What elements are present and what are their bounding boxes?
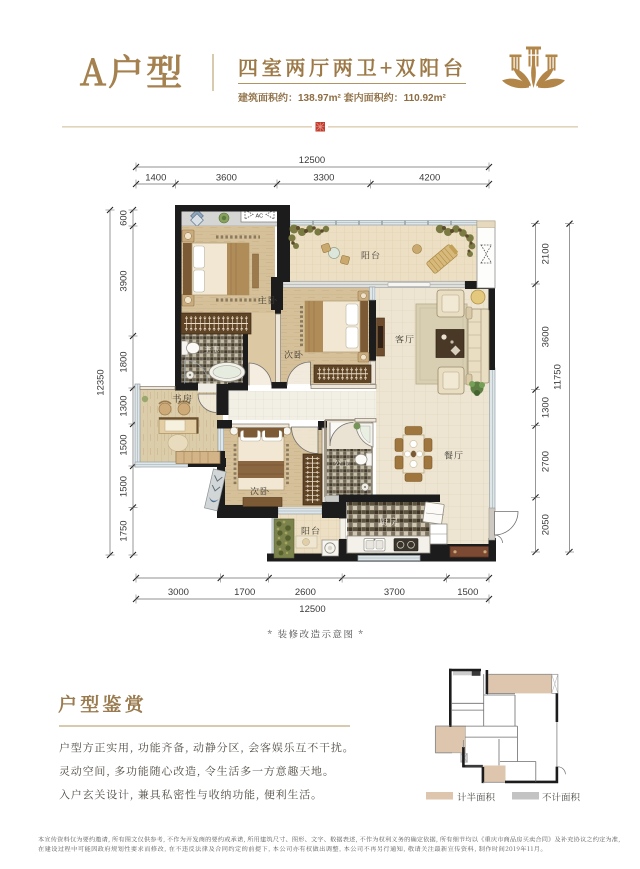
svg-text:在建设过程中可能因政府规划性要求而修改, 在不违反法律及合同: 在建设过程中可能因政府规划性要求而修改, 在不违反法律及合同约定的前提下, 本公… [38,844,547,853]
svg-text:1500: 1500 [457,587,478,598]
svg-text:次卧: 次卧 [250,485,270,498]
svg-text:12500: 12500 [299,155,325,166]
svg-text:书房: 书房 [172,391,193,405]
svg-text:阳台: 阳台 [361,249,381,262]
svg-text:AC: AC [256,214,264,220]
svg-text:2050: 2050 [541,514,552,535]
svg-text:11750: 11750 [553,364,564,390]
svg-text:12350: 12350 [96,369,107,395]
svg-text:1300: 1300 [541,397,552,418]
svg-text:次卧: 次卧 [284,348,304,361]
svg-text:1500: 1500 [119,434,130,455]
svg-text:1800: 1800 [119,351,130,372]
svg-text:灵动空间, 多功能随心改造, 令生活多一方意趣天地。: 灵动空间, 多功能随心改造, 令生活多一方意趣天地。 [59,763,335,779]
svg-text:1400: 1400 [145,173,166,184]
svg-text:2600: 2600 [295,587,316,598]
svg-text:3300: 3300 [313,173,334,184]
svg-text:不计面积: 不计面积 [542,790,581,804]
svg-text:1750: 1750 [119,520,130,541]
svg-text:户型鉴赏: 户型鉴赏 [58,690,147,717]
svg-text:计半面积: 计半面积 [457,790,496,804]
svg-text:4200: 4200 [419,173,440,184]
svg-text:2100: 2100 [541,243,552,264]
svg-text:1500: 1500 [119,476,130,497]
svg-text:入户玄关设计, 兼具私密性与收纳功能, 便利生活。: 入户玄关设计, 兼具私密性与收纳功能, 便利生活。 [59,787,323,803]
svg-text:A户型: A户型 [79,45,184,96]
svg-text:1700: 1700 [234,587,255,598]
svg-text:3600: 3600 [216,173,237,184]
svg-text:3600: 3600 [541,326,552,347]
svg-text:本宣传资料仅为要约邀请, 所有图文仅供参考, 不作为开发商的: 本宣传资料仅为要约邀请, 所有图文仅供参考, 不作为开发商的要约或承诺, 所用建… [38,835,620,844]
svg-text:1300: 1300 [119,395,130,416]
svg-text:12500: 12500 [299,604,325,615]
svg-text:阳台: 阳台 [301,524,321,537]
svg-text:公卫: 公卫 [334,458,350,469]
svg-text:四室两厅两卫+双阳台: 四室两厅两卫+双阳台 [238,52,467,81]
svg-text:客厅: 客厅 [395,333,415,346]
svg-text:建筑面积约：138.97m² 套内面积约：110.92m²: 建筑面积约：138.97m² 套内面积约：110.92m² [238,92,447,104]
svg-text:2700: 2700 [541,451,552,472]
svg-text:主卫: 主卫 [204,344,220,355]
svg-text:户型方正实用, 功能齐备, 动静分区, 会客娱乐互不干扰。: 户型方正实用, 功能齐备, 动静分区, 会客娱乐互不干扰。 [59,740,354,756]
svg-text:* 装修改造示意图 *: * 装修改造示意图 * [268,627,365,641]
svg-text:3900: 3900 [119,270,130,291]
svg-text:600: 600 [119,210,130,226]
svg-text:厨房: 厨房 [379,515,399,528]
svg-text:餐厅: 餐厅 [444,449,464,462]
svg-text:主卧: 主卧 [258,294,278,307]
svg-text:3000: 3000 [168,587,189,598]
svg-text:3700: 3700 [384,587,405,598]
